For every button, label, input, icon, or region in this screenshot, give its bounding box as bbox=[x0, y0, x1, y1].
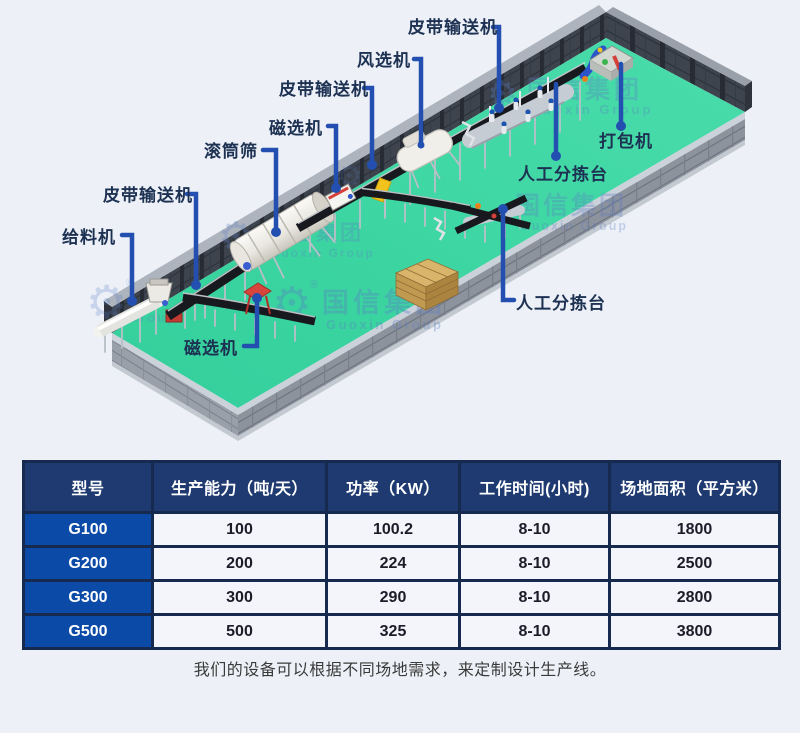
label-magnetic-separator-1: 磁选机 bbox=[269, 118, 323, 138]
cell-capacity: 100 bbox=[153, 513, 327, 547]
table-row: G200 200 224 8-10 2500 bbox=[24, 547, 780, 581]
cell-power: 224 bbox=[327, 547, 460, 581]
table-header-row: 型号 生产能力（吨/天） 功率（KW） 工作时间(小时) 场地面积（平方米） bbox=[24, 462, 780, 513]
trommel-motor bbox=[243, 262, 251, 270]
svg-text:Guoxin Group: Guoxin Group bbox=[326, 317, 443, 332]
cell-hours: 8-10 bbox=[460, 513, 610, 547]
header-area: 场地面积（平方米） bbox=[610, 462, 780, 513]
label-trommel-screen: 滚筒筛 bbox=[204, 141, 258, 161]
label-air-separator: 风选机 bbox=[357, 50, 411, 70]
cell-model: G200 bbox=[24, 547, 153, 581]
warehouse-structure bbox=[104, 5, 752, 441]
table-row: G300 300 290 8-10 2800 bbox=[24, 581, 780, 615]
svg-text:国信集团: 国信集团 bbox=[515, 191, 627, 220]
svg-text:Guoxin Group: Guoxin Group bbox=[520, 219, 628, 233]
spec-table: 型号 生产能力（吨/天） 功率（KW） 工作时间(小时) 场地面积（平方米） G… bbox=[22, 460, 781, 650]
label-belt-conveyor-top: 皮带输送机 bbox=[408, 17, 498, 37]
label-belt-conveyor-mid: 皮带输送机 bbox=[279, 79, 369, 99]
cell-model: G500 bbox=[24, 615, 153, 649]
label-manual-sorting-2: 人工分拣台 bbox=[516, 293, 606, 313]
table-row: G500 500 325 8-10 3800 bbox=[24, 615, 780, 649]
cell-area: 1800 bbox=[610, 513, 780, 547]
cell-hours: 8-10 bbox=[460, 615, 610, 649]
cell-hours: 8-10 bbox=[460, 547, 610, 581]
label-feeder: 给料机 bbox=[62, 227, 116, 247]
caption-text: 我们的设备可以根据不同场地需求，来定制设计生产线。 bbox=[0, 656, 800, 680]
table-row: G100 100 100.2 8-10 1800 bbox=[24, 513, 780, 547]
registered-icon: ® bbox=[310, 279, 318, 291]
cell-hours: 8-10 bbox=[460, 581, 610, 615]
label-manual-sorting-1: 人工分拣台 bbox=[518, 164, 608, 184]
cell-model: G100 bbox=[24, 513, 153, 547]
cell-area: 2500 bbox=[610, 547, 780, 581]
wall-cap-right bbox=[745, 81, 752, 112]
watermark-4: 国信集团 Guoxin Group bbox=[515, 191, 628, 233]
cell-area: 2800 bbox=[610, 581, 780, 615]
plant-layout-illustration: ⚙ 国信集团 Guoxin Group ⚙ 国信集团 Guoxin Group … bbox=[0, 0, 800, 455]
header-power: 功率（KW） bbox=[327, 462, 460, 513]
cell-model: G300 bbox=[24, 581, 153, 615]
cell-power: 325 bbox=[327, 615, 460, 649]
cell-capacity: 500 bbox=[153, 615, 327, 649]
cell-capacity: 300 bbox=[153, 581, 327, 615]
cell-power: 290 bbox=[327, 581, 460, 615]
label-magnetic-separator-2: 磁选机 bbox=[184, 338, 238, 358]
cell-capacity: 200 bbox=[153, 547, 327, 581]
label-belt-conveyor-left: 皮带输送机 bbox=[103, 185, 193, 205]
cell-area: 3800 bbox=[610, 615, 780, 649]
header-capacity: 生产能力（吨/天） bbox=[153, 462, 327, 513]
header-hours: 工作时间(小时) bbox=[460, 462, 610, 513]
header-model: 型号 bbox=[24, 462, 153, 513]
product-page: ⚙ 国信集团 Guoxin Group ⚙ 国信集团 Guoxin Group … bbox=[0, 0, 800, 733]
label-baler: 打包机 bbox=[599, 131, 653, 151]
cell-power: 100.2 bbox=[327, 513, 460, 547]
